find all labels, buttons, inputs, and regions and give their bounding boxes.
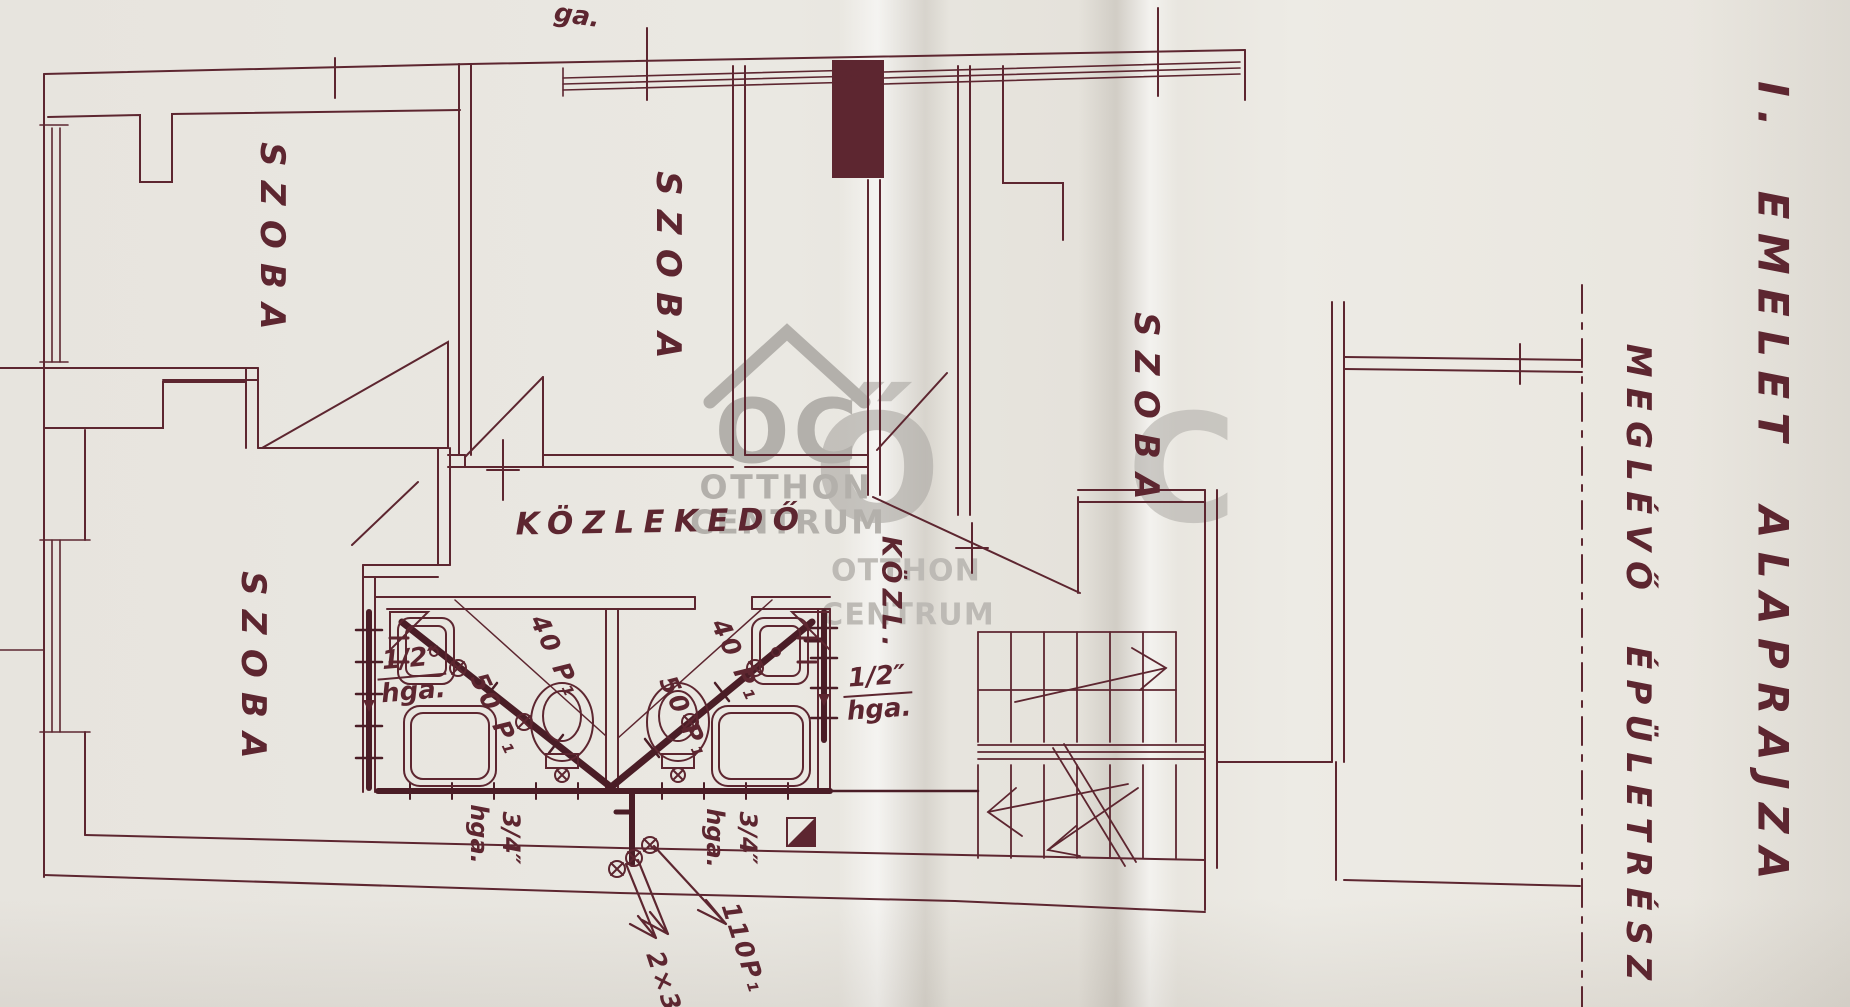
dimension-right-half-inch: 1/2″ hga. (841, 660, 915, 727)
room-label-szoba-bottom-left: SZOBA (233, 571, 273, 773)
drop-right-unit: hga. (701, 808, 729, 868)
title-floorplan: I. EMELET ALAPRAJZA (1749, 81, 1798, 893)
room-label-corridor: KÖZLEKEDŐ (515, 501, 808, 542)
drop-right-size: 3/4″ (734, 812, 762, 865)
title-existing-building: MEGLÉVŐ ÉPÜLETRÉSZ (1618, 344, 1658, 991)
drop-left-unit: hga. (465, 804, 493, 864)
dimension-unit: hga. (380, 675, 447, 710)
room-label-corridor-abbrev: KÖZL. (876, 536, 907, 652)
room-label-szoba-top-left: SZOBA (252, 142, 292, 344)
dimension-unit: hga. (846, 693, 912, 727)
floorplan-page: OC Ő C OTTHON CENTRUM OTTHON CENTRUM (0, 0, 1850, 1007)
staircase-group (978, 632, 1205, 866)
bathroom-fixtures-group (390, 600, 830, 846)
drop-left-size: 3/4″ (497, 812, 525, 865)
walls-group (0, 8, 1582, 912)
room-label-szoba-top-middle: SZOBA (648, 171, 688, 373)
room-label-szoba-right: SZOBA (1126, 312, 1166, 514)
dimension-left-half-inch: 1/2″ hga. (375, 642, 450, 711)
bathtub-2 (712, 706, 810, 786)
